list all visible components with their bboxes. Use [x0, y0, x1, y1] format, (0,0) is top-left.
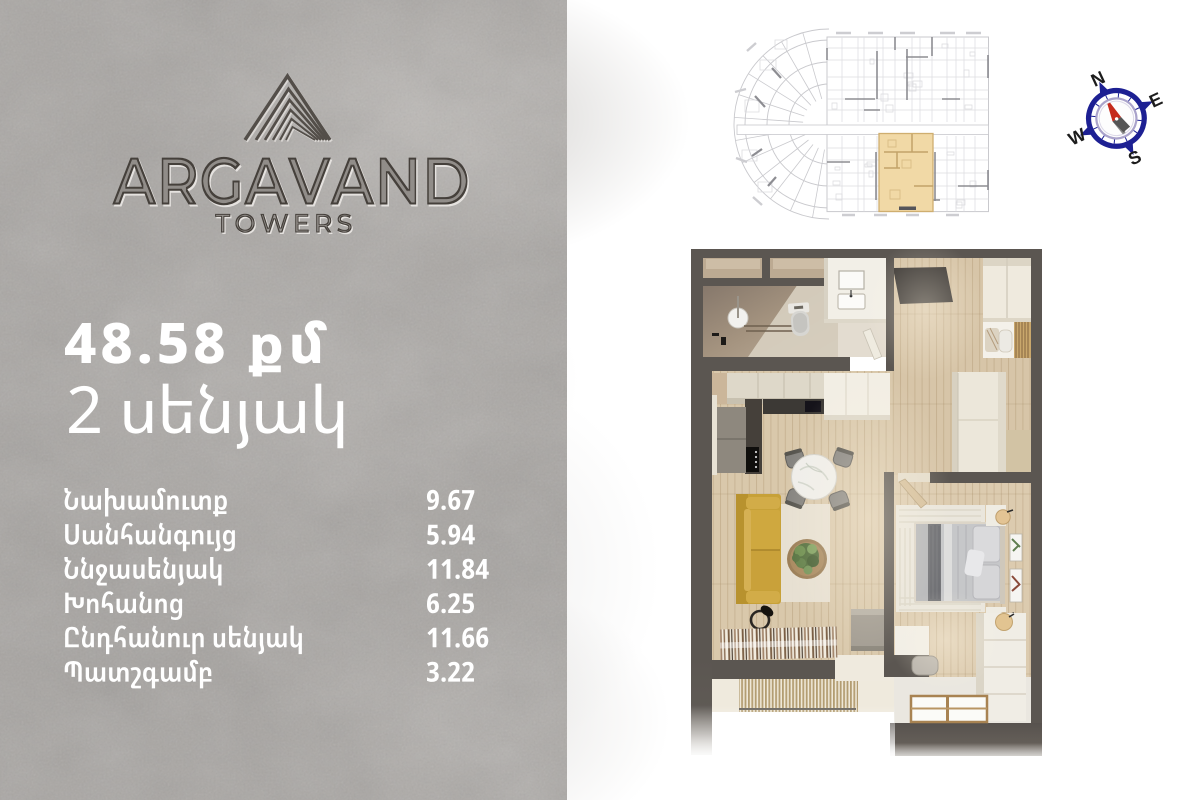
svg-text:W: W — [1065, 124, 1089, 149]
svg-text:S: S — [1125, 146, 1144, 169]
svg-text:E: E — [1146, 88, 1165, 111]
